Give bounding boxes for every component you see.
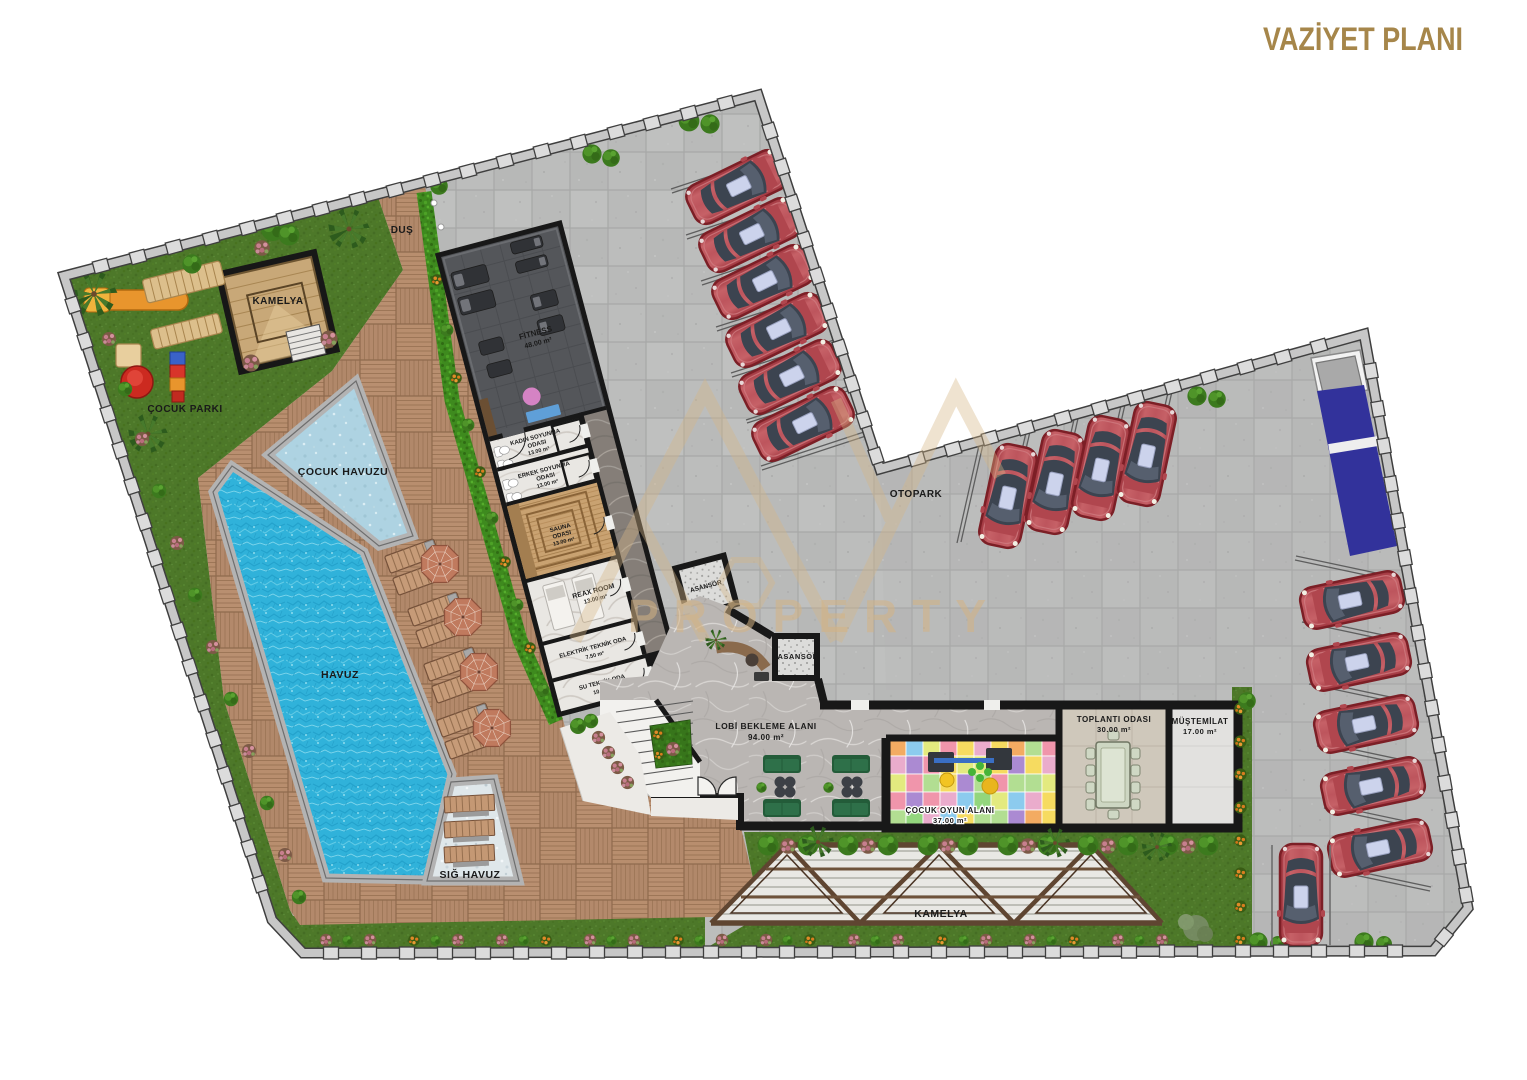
svg-text:ÇOCUK OYUN ALANI: ÇOCUK OYUN ALANI	[905, 806, 994, 815]
svg-text:ASANSÖR: ASANSÖR	[777, 652, 818, 661]
svg-text:ÇOCUK PARKI: ÇOCUK PARKI	[147, 404, 222, 415]
svg-text:HAVUZ: HAVUZ	[321, 669, 359, 681]
svg-text:VAZİYET PLANI: VAZİYET PLANI	[1263, 21, 1463, 57]
svg-text:OTOPARK: OTOPARK	[890, 489, 943, 500]
svg-text:MÜŞTEMİLAT: MÜŞTEMİLAT	[1172, 717, 1229, 726]
svg-text:30.00 m²: 30.00 m²	[1097, 725, 1131, 734]
svg-text:DUŞ: DUŞ	[391, 225, 414, 236]
svg-text:KAMELYA: KAMELYA	[252, 296, 303, 307]
svg-text:37.00 m²: 37.00 m²	[933, 816, 967, 825]
svg-text:KAMELYA: KAMELYA	[914, 908, 968, 920]
svg-text:LOBİ BEKLEME ALANI: LOBİ BEKLEME ALANI	[715, 721, 816, 731]
svg-text:94.00 m²: 94.00 m²	[748, 733, 784, 742]
svg-text:SIĞ HAVUZ: SIĞ HAVUZ	[440, 868, 501, 881]
svg-text:ÇOCUK HAVUZU: ÇOCUK HAVUZU	[298, 466, 388, 478]
svg-text:PROPERTY: PROPERTY	[628, 590, 1001, 642]
svg-text:TOPLANTI ODASI: TOPLANTI ODASI	[1077, 715, 1151, 724]
svg-text:17.00 m²: 17.00 m²	[1183, 727, 1217, 736]
